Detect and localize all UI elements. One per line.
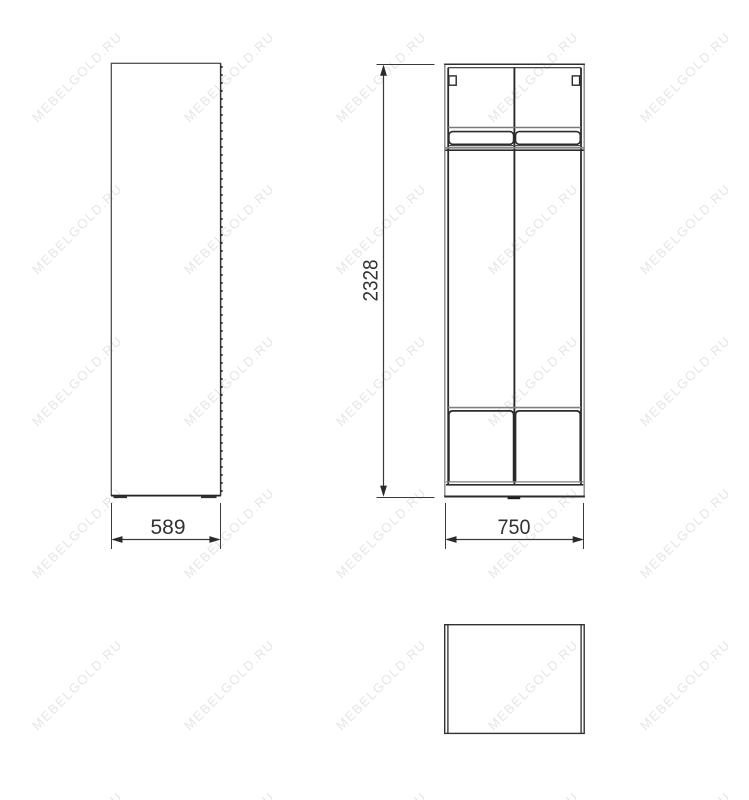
svg-text:MEBELGOLD.RU: MEBELGOLD.RU — [637, 181, 733, 277]
svg-text:MEBELGOLD.RU: MEBELGOLD.RU — [485, 637, 581, 733]
svg-text:MEBELGOLD.RU: MEBELGOLD.RU — [181, 789, 277, 800]
svg-text:589: 589 — [151, 515, 186, 539]
svg-text:MEBELGOLD.RU: MEBELGOLD.RU — [485, 29, 581, 125]
svg-text:MEBELGOLD.RU: MEBELGOLD.RU — [29, 485, 125, 581]
svg-text:MEBELGOLD.RU: MEBELGOLD.RU — [333, 485, 429, 581]
svg-text:MEBELGOLD.RU: MEBELGOLD.RU — [181, 29, 277, 125]
svg-text:MEBELGOLD.RU: MEBELGOLD.RU — [333, 789, 429, 800]
svg-text:MEBELGOLD.RU: MEBELGOLD.RU — [181, 637, 277, 733]
svg-text:MEBELGOLD.RU: MEBELGOLD.RU — [181, 181, 277, 277]
svg-text:MEBELGOLD.RU: MEBELGOLD.RU — [333, 29, 429, 125]
svg-text:MEBELGOLD.RU: MEBELGOLD.RU — [485, 181, 581, 277]
svg-text:MEBELGOLD.RU: MEBELGOLD.RU — [637, 789, 733, 800]
svg-text:2328: 2328 — [359, 259, 383, 301]
svg-text:MEBELGOLD.RU: MEBELGOLD.RU — [333, 333, 429, 429]
svg-text:MEBELGOLD.RU: MEBELGOLD.RU — [29, 789, 125, 800]
svg-text:MEBELGOLD.RU: MEBELGOLD.RU — [485, 789, 581, 800]
svg-text:MEBELGOLD.RU: MEBELGOLD.RU — [637, 637, 733, 733]
svg-text:MEBELGOLD.RU: MEBELGOLD.RU — [333, 637, 429, 733]
svg-text:MEBELGOLD.RU: MEBELGOLD.RU — [29, 637, 125, 733]
svg-text:MEBELGOLD.RU: MEBELGOLD.RU — [181, 485, 277, 581]
svg-text:MEBELGOLD.RU: MEBELGOLD.RU — [637, 333, 733, 429]
svg-text:MEBELGOLD.RU: MEBELGOLD.RU — [637, 29, 733, 125]
svg-text:MEBELGOLD.RU: MEBELGOLD.RU — [181, 333, 277, 429]
svg-text:MEBELGOLD.RU: MEBELGOLD.RU — [637, 485, 733, 581]
svg-text:MEBELGOLD.RU: MEBELGOLD.RU — [485, 333, 581, 429]
svg-text:750: 750 — [498, 515, 531, 539]
